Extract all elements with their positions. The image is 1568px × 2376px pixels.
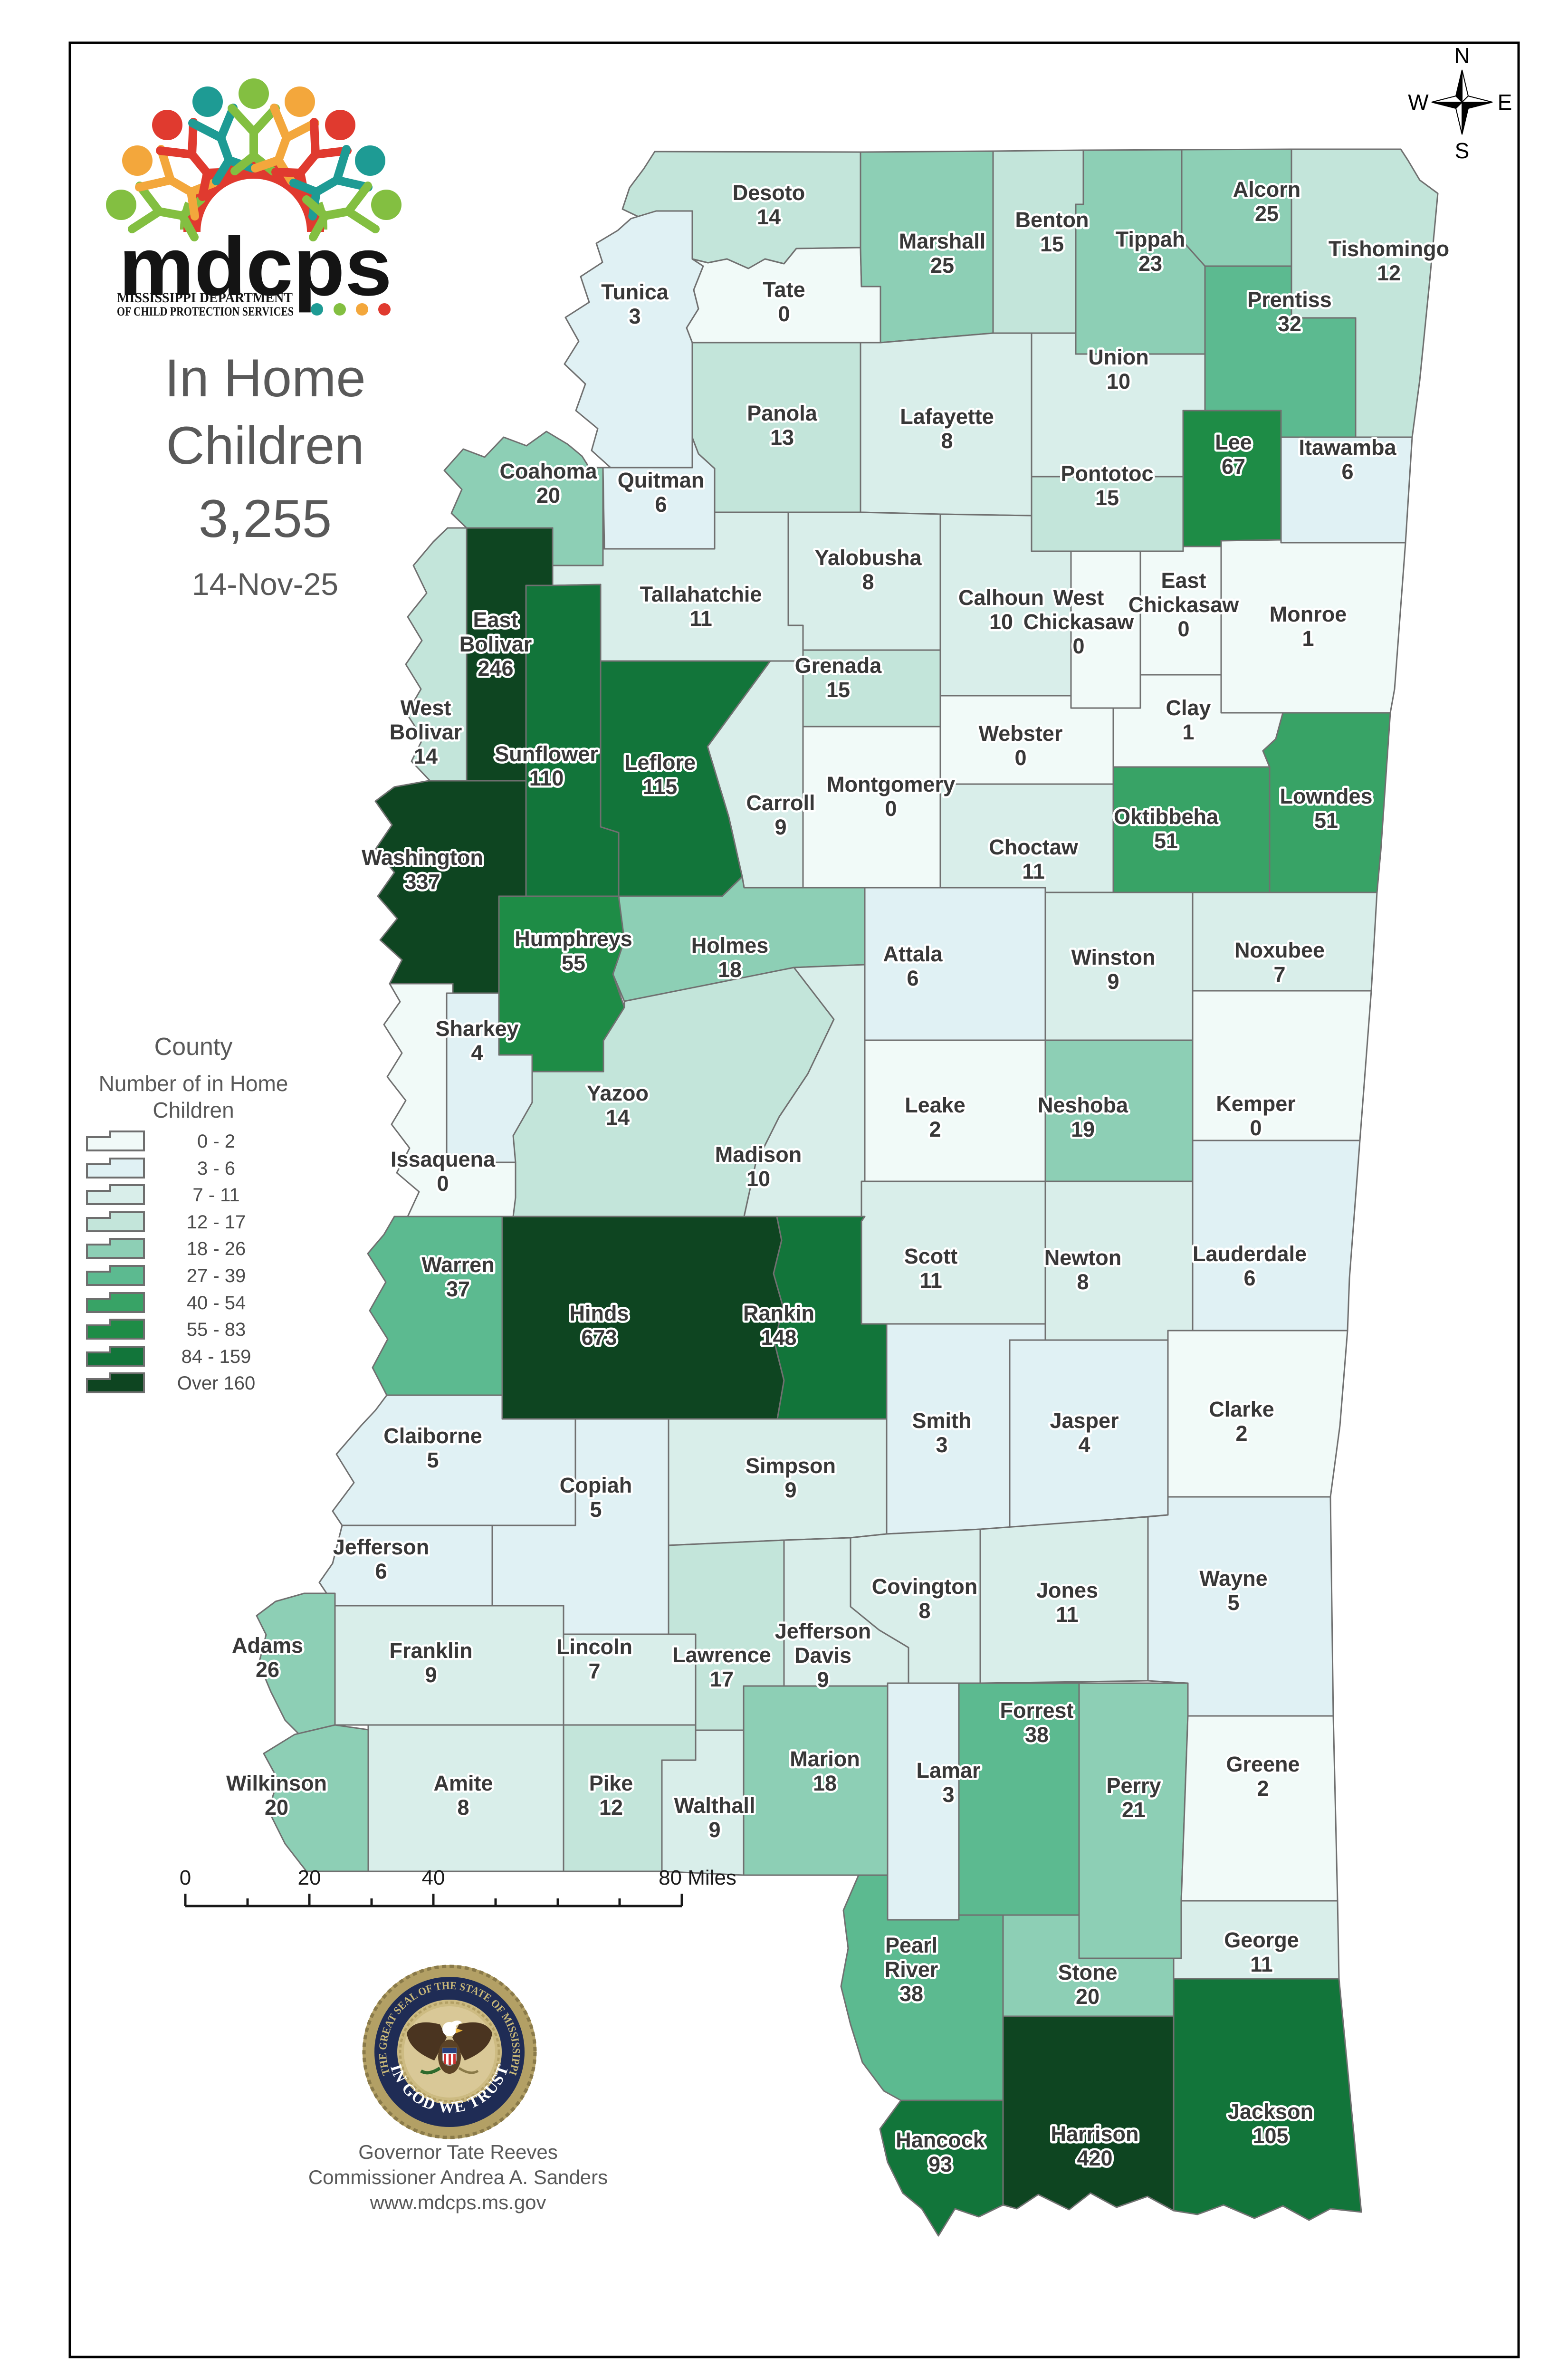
svg-text:6: 6 xyxy=(655,492,667,517)
svg-text:0: 0 xyxy=(778,302,790,326)
svg-text:Simpson: Simpson xyxy=(746,1454,836,1478)
svg-text:15: 15 xyxy=(826,678,850,702)
svg-text:Lincoln: Lincoln xyxy=(556,1635,632,1659)
svg-text:3: 3 xyxy=(629,304,641,328)
svg-text:8: 8 xyxy=(862,570,874,594)
svg-text:Tippah: Tippah xyxy=(1116,227,1186,251)
svg-text:Union: Union xyxy=(1088,345,1148,369)
svg-text:Choctaw: Choctaw xyxy=(989,835,1079,859)
svg-text:80 Miles: 80 Miles xyxy=(659,1866,736,1889)
svg-text:12 - 17: 12 - 17 xyxy=(187,1212,246,1233)
svg-text:Clarke: Clarke xyxy=(1209,1397,1274,1421)
svg-text:Humphreys: Humphreys xyxy=(515,927,632,951)
svg-text:OF CHILD PROTECTION SERVICES: OF CHILD PROTECTION SERVICES xyxy=(117,305,294,318)
svg-text:32: 32 xyxy=(1278,312,1301,336)
svg-text:Neshoba: Neshoba xyxy=(1038,1093,1128,1117)
svg-text:14-Nov-25: 14-Nov-25 xyxy=(192,566,338,602)
svg-text:7 - 11: 7 - 11 xyxy=(192,1185,239,1206)
svg-text:19: 19 xyxy=(1071,1117,1095,1141)
svg-text:Children: Children xyxy=(166,416,364,475)
svg-text:Madison: Madison xyxy=(715,1142,802,1167)
svg-text:10: 10 xyxy=(1107,369,1130,393)
svg-text:9: 9 xyxy=(425,1663,437,1687)
svg-text:0: 0 xyxy=(1177,617,1189,641)
svg-text:38: 38 xyxy=(899,1982,923,2006)
svg-text:Oktibbeha: Oktibbeha xyxy=(1114,805,1219,829)
svg-text:George: George xyxy=(1224,1928,1299,1952)
svg-text:Over 160: Over 160 xyxy=(177,1373,256,1394)
svg-text:River: River xyxy=(885,1957,938,1982)
svg-text:20: 20 xyxy=(536,483,560,508)
svg-text:Tunica: Tunica xyxy=(601,280,669,304)
svg-text:18: 18 xyxy=(718,958,742,982)
svg-text:Prentiss: Prentiss xyxy=(1247,287,1332,312)
svg-text:Lowndes: Lowndes xyxy=(1280,784,1372,808)
svg-text:3,255: 3,255 xyxy=(199,489,332,548)
svg-text:Pearl: Pearl xyxy=(885,1933,937,1957)
svg-text:Issaquena: Issaquena xyxy=(391,1147,496,1171)
svg-text:40: 40 xyxy=(422,1866,445,1889)
svg-text:Commissioner Andrea A. Sanders: Commissioner Andrea A. Sanders xyxy=(308,2166,608,2188)
svg-text:Warren: Warren xyxy=(421,1253,494,1277)
svg-text:148: 148 xyxy=(761,1325,796,1350)
svg-text:6: 6 xyxy=(375,1559,387,1583)
svg-text:Adams: Adams xyxy=(232,1633,303,1657)
svg-text:County: County xyxy=(154,1033,233,1061)
svg-text:www.mdcps.ms.gov: www.mdcps.ms.gov xyxy=(369,2191,546,2213)
svg-text:9: 9 xyxy=(774,815,786,839)
svg-text:6: 6 xyxy=(907,966,918,990)
svg-text:Coahoma: Coahoma xyxy=(499,459,597,483)
svg-text:Scott: Scott xyxy=(904,1244,958,1268)
svg-text:11: 11 xyxy=(1250,1952,1273,1976)
svg-text:8: 8 xyxy=(918,1599,930,1623)
svg-text:Newton: Newton xyxy=(1044,1245,1122,1270)
svg-text:9: 9 xyxy=(708,1818,720,1842)
svg-text:Monroe: Monroe xyxy=(1270,602,1347,626)
svg-text:8: 8 xyxy=(457,1795,469,1820)
svg-text:Noxubee: Noxubee xyxy=(1234,938,1325,962)
svg-text:55 - 83: 55 - 83 xyxy=(187,1319,246,1340)
svg-text:Greene: Greene xyxy=(1226,1752,1300,1776)
svg-text:25: 25 xyxy=(1255,201,1279,226)
svg-text:Sunflower: Sunflower xyxy=(495,742,598,766)
svg-text:Forrest: Forrest xyxy=(1000,1698,1073,1723)
svg-text:East: East xyxy=(473,608,518,632)
svg-text:Children: Children xyxy=(153,1098,234,1122)
svg-text:Grenada: Grenada xyxy=(795,653,882,678)
svg-text:West: West xyxy=(1053,585,1104,610)
svg-text:Itawamba: Itawamba xyxy=(1299,435,1396,460)
svg-text:2: 2 xyxy=(1235,1421,1247,1446)
svg-text:7: 7 xyxy=(1273,962,1285,987)
svg-text:37: 37 xyxy=(446,1277,470,1301)
svg-text:38: 38 xyxy=(1025,1723,1049,1747)
svg-text:18: 18 xyxy=(813,1771,837,1795)
svg-text:40 - 54: 40 - 54 xyxy=(187,1293,246,1313)
svg-text:115: 115 xyxy=(643,775,678,799)
svg-text:8: 8 xyxy=(1077,1270,1089,1294)
svg-text:10: 10 xyxy=(746,1167,770,1191)
svg-text:Pike: Pike xyxy=(589,1771,633,1795)
svg-text:Chickasaw: Chickasaw xyxy=(1128,593,1240,617)
svg-text:Marion: Marion xyxy=(790,1747,860,1771)
svg-text:18 - 26: 18 - 26 xyxy=(187,1238,246,1259)
svg-text:Yazoo: Yazoo xyxy=(587,1081,649,1105)
svg-text:0: 0 xyxy=(180,1866,191,1889)
svg-text:Tishomingo: Tishomingo xyxy=(1329,237,1449,261)
svg-text:246: 246 xyxy=(478,656,513,680)
svg-text:In Home: In Home xyxy=(164,348,365,408)
svg-text:105: 105 xyxy=(1252,2124,1288,2148)
svg-text:Claiborne: Claiborne xyxy=(383,1424,482,1448)
svg-text:21: 21 xyxy=(1122,1798,1146,1822)
svg-text:25: 25 xyxy=(930,253,954,278)
svg-text:Marshall: Marshall xyxy=(899,229,986,253)
svg-text:84 - 159: 84 - 159 xyxy=(182,1346,251,1367)
svg-text:Covington: Covington xyxy=(872,1574,977,1599)
svg-text:Bolivar: Bolivar xyxy=(459,632,532,656)
svg-text:Lamar: Lamar xyxy=(916,1758,980,1782)
svg-text:1: 1 xyxy=(1302,626,1314,651)
svg-text:Leflore: Leflore xyxy=(624,750,696,775)
svg-text:4: 4 xyxy=(1078,1433,1090,1457)
svg-text:20: 20 xyxy=(1076,1984,1100,2009)
svg-text:93: 93 xyxy=(928,2152,952,2176)
svg-text:Attala: Attala xyxy=(883,942,943,966)
svg-text:4: 4 xyxy=(471,1041,483,1065)
svg-text:9: 9 xyxy=(817,1667,829,1692)
svg-text:5: 5 xyxy=(1227,1590,1239,1615)
svg-text:5: 5 xyxy=(427,1448,439,1472)
svg-text:0: 0 xyxy=(1250,1116,1262,1140)
svg-text:Lee: Lee xyxy=(1215,430,1252,454)
svg-text:55: 55 xyxy=(562,951,585,975)
svg-text:Rankin: Rankin xyxy=(743,1301,814,1325)
svg-text:3: 3 xyxy=(942,1782,954,1807)
svg-text:Tate: Tate xyxy=(763,278,805,302)
svg-text:14: 14 xyxy=(757,205,781,229)
svg-text:3: 3 xyxy=(936,1433,947,1457)
svg-text:Franklin: Franklin xyxy=(389,1638,472,1663)
svg-text:14: 14 xyxy=(606,1105,630,1130)
svg-text:Hinds: Hinds xyxy=(569,1301,629,1325)
svg-text:23: 23 xyxy=(1138,251,1162,276)
svg-text:Copiah: Copiah xyxy=(560,1473,632,1497)
svg-text:Hancock: Hancock xyxy=(896,2128,985,2152)
svg-text:Yalobusha: Yalobusha xyxy=(814,546,922,570)
svg-text:Clay: Clay xyxy=(1166,696,1211,720)
svg-text:Davis: Davis xyxy=(794,1643,851,1667)
svg-text:5: 5 xyxy=(590,1497,602,1522)
svg-text:Kemper: Kemper xyxy=(1216,1092,1296,1116)
svg-text:Winston: Winston xyxy=(1071,945,1155,969)
svg-text:Number of in Home: Number of in Home xyxy=(99,1071,288,1096)
svg-text:0: 0 xyxy=(437,1171,449,1196)
svg-text:14: 14 xyxy=(414,744,438,768)
svg-text:Jefferson: Jefferson xyxy=(333,1535,430,1559)
svg-text:51: 51 xyxy=(1154,829,1178,853)
svg-text:0 - 2: 0 - 2 xyxy=(197,1131,235,1152)
svg-text:2: 2 xyxy=(929,1117,941,1141)
svg-text:420: 420 xyxy=(1077,2146,1112,2170)
svg-text:13: 13 xyxy=(770,425,794,450)
svg-text:11: 11 xyxy=(689,606,712,631)
svg-text:MISSISSIPPI DEPARTMENT: MISSISSIPPI DEPARTMENT xyxy=(117,290,293,306)
svg-text:Lawrence: Lawrence xyxy=(672,1643,771,1667)
svg-text:3 - 6: 3 - 6 xyxy=(197,1158,235,1179)
svg-text:9: 9 xyxy=(1107,969,1119,994)
svg-text:West: West xyxy=(401,696,451,720)
svg-text:Sharkey: Sharkey xyxy=(435,1016,518,1041)
svg-text:Panola: Panola xyxy=(747,401,818,425)
svg-text:6: 6 xyxy=(1341,460,1353,484)
svg-text:Quitman: Quitman xyxy=(618,468,705,492)
svg-text:Wilkinson: Wilkinson xyxy=(226,1771,327,1795)
svg-text:Chickasaw: Chickasaw xyxy=(1023,610,1135,634)
svg-text:11: 11 xyxy=(919,1268,942,1293)
svg-text:Jackson: Jackson xyxy=(1228,2099,1313,2124)
svg-text:Smith: Smith xyxy=(912,1408,971,1433)
svg-text:Jasper: Jasper xyxy=(1050,1408,1119,1433)
svg-text:Calhoun: Calhoun xyxy=(958,585,1044,610)
svg-text:Montgomery: Montgomery xyxy=(827,772,955,796)
svg-text:337: 337 xyxy=(404,870,440,894)
svg-text:Jones: Jones xyxy=(1036,1578,1098,1602)
svg-text:12: 12 xyxy=(1377,261,1401,285)
svg-text:Harrison: Harrison xyxy=(1051,2122,1138,2146)
svg-text:Pontotoc: Pontotoc xyxy=(1061,461,1154,486)
svg-text:11: 11 xyxy=(1056,1602,1079,1627)
svg-text:East: East xyxy=(1161,568,1206,593)
svg-text:0: 0 xyxy=(885,796,897,821)
svg-text:7: 7 xyxy=(588,1659,600,1683)
svg-text:E: E xyxy=(1498,90,1512,115)
svg-text:Bolivar: Bolivar xyxy=(390,720,462,744)
svg-text:0: 0 xyxy=(1072,634,1084,658)
svg-text:26: 26 xyxy=(256,1657,279,1682)
svg-text:S: S xyxy=(1455,138,1470,163)
svg-text:673: 673 xyxy=(581,1325,617,1350)
svg-text:Webster: Webster xyxy=(979,721,1063,746)
svg-text:6: 6 xyxy=(1243,1266,1255,1290)
svg-text:Lafayette: Lafayette xyxy=(900,404,994,429)
svg-text:27 - 39: 27 - 39 xyxy=(187,1265,246,1286)
svg-text:15: 15 xyxy=(1040,232,1064,256)
svg-text:Amite: Amite xyxy=(433,1771,493,1795)
svg-text:Wayne: Wayne xyxy=(1199,1566,1267,1590)
svg-text:15: 15 xyxy=(1095,486,1119,510)
svg-text:11: 11 xyxy=(1022,859,1045,883)
svg-text:20: 20 xyxy=(298,1866,321,1889)
svg-text:N: N xyxy=(1454,43,1470,68)
svg-text:Benton: Benton xyxy=(1015,208,1089,232)
svg-text:2: 2 xyxy=(1257,1776,1269,1801)
svg-text:10: 10 xyxy=(989,610,1013,634)
svg-text:Tallahatchie: Tallahatchie xyxy=(640,582,762,606)
svg-text:67: 67 xyxy=(1222,454,1245,479)
svg-text:Leake: Leake xyxy=(905,1093,966,1117)
svg-text:17: 17 xyxy=(710,1667,734,1691)
svg-text:12: 12 xyxy=(599,1795,623,1820)
svg-text:Stone: Stone xyxy=(1058,1960,1117,1984)
svg-text:Walthall: Walthall xyxy=(674,1793,755,1818)
svg-text:W: W xyxy=(1408,90,1429,115)
svg-text:Washington: Washington xyxy=(362,845,483,870)
svg-text:9: 9 xyxy=(784,1478,796,1502)
svg-text:0: 0 xyxy=(1014,746,1026,770)
svg-text:51: 51 xyxy=(1314,808,1338,833)
svg-text:Desoto: Desoto xyxy=(733,181,805,205)
svg-text:Lauderdale: Lauderdale xyxy=(1193,1242,1307,1266)
svg-text:Holmes: Holmes xyxy=(691,933,769,958)
svg-text:1: 1 xyxy=(1182,720,1194,744)
svg-text:110: 110 xyxy=(529,766,564,790)
svg-text:8: 8 xyxy=(941,429,953,453)
svg-text:Alcorn: Alcorn xyxy=(1233,177,1301,201)
svg-text:Jefferson: Jefferson xyxy=(775,1619,871,1643)
svg-text:Carroll: Carroll xyxy=(746,791,815,815)
svg-text:Governor Tate Reeves: Governor Tate Reeves xyxy=(358,2141,557,2163)
svg-text:Perry: Perry xyxy=(1106,1773,1161,1798)
svg-text:20: 20 xyxy=(265,1795,288,1820)
